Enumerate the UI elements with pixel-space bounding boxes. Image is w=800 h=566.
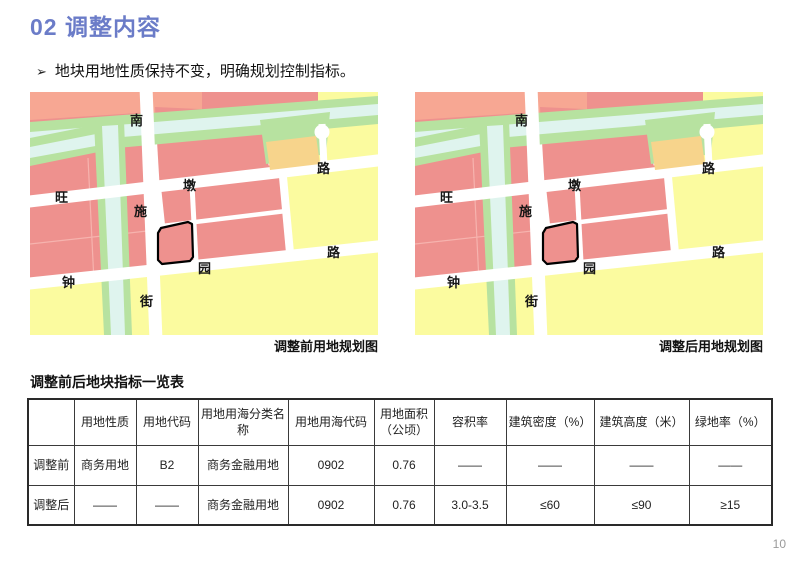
bullet-item: ➢地块用地性质保持不变，明确规划控制指标。: [36, 60, 355, 81]
column-header: 用地面积（公顷）: [374, 399, 434, 445]
column-header: 容积率: [434, 399, 506, 445]
map-before-adjustment: [30, 92, 378, 335]
map-caption-after: 调整后用地规划图: [415, 336, 763, 355]
table-cell: 3.0-3.5: [434, 485, 506, 525]
table-cell: ≤90: [594, 485, 689, 525]
column-header: 用地性质: [74, 399, 136, 445]
table-cell: ——: [594, 445, 689, 485]
bullet-arrow-icon: ➢: [36, 64, 47, 79]
column-header: [28, 399, 74, 445]
table-header-row: 用地性质 用地代码 用地用海分类名称 用地用海代码 用地面积（公顷） 容积率 建…: [28, 399, 772, 445]
table-cell: ≥15: [689, 485, 772, 525]
row-label: 调整后: [28, 485, 74, 525]
table-cell: ——: [689, 445, 772, 485]
table-row: 调整后 —— —— 商务金融用地 0902 0.76 3.0-3.5 ≤60 ≤…: [28, 485, 772, 525]
map-caption-before: 调整前用地规划图: [30, 336, 378, 355]
table-cell: 0.76: [374, 485, 434, 525]
column-header: 建筑密度（%）: [506, 399, 594, 445]
column-header: 用地代码: [136, 399, 198, 445]
table-cell: 商务金融用地: [198, 485, 288, 525]
table-cell: 0.76: [374, 445, 434, 485]
map-after-adjustment: [415, 92, 763, 335]
table-cell: ——: [74, 485, 136, 525]
column-header: 用地用海代码: [288, 399, 374, 445]
table-cell: 商务金融用地: [198, 445, 288, 485]
table-row: 调整前 商务用地 B2 商务金融用地 0902 0.76 —— —— —— ——: [28, 445, 772, 485]
column-header: 建筑高度（米）: [594, 399, 689, 445]
table-cell: ≤60: [506, 485, 594, 525]
column-header: 绿地率（%）: [689, 399, 772, 445]
row-label: 调整前: [28, 445, 74, 485]
page-title: 02 调整内容: [30, 8, 161, 42]
table-cell: ——: [136, 485, 198, 525]
bullet-text: 地块用地性质保持不变，明确规划控制指标。: [55, 63, 355, 80]
table-title: 调整前后地块指标一览表: [30, 372, 184, 392]
slide: 02 调整内容 ➢地块用地性质保持不变，明确规划控制指标。: [0, 0, 800, 566]
indicators-table: 用地性质 用地代码 用地用海分类名称 用地用海代码 用地面积（公顷） 容积率 建…: [27, 398, 773, 526]
page-number: 10: [773, 537, 786, 551]
table-cell: 商务用地: [74, 445, 136, 485]
table-cell: ——: [434, 445, 506, 485]
table-cell: B2: [136, 445, 198, 485]
column-header: 用地用海分类名称: [198, 399, 288, 445]
table-cell: ——: [506, 445, 594, 485]
table-cell: 0902: [288, 485, 374, 525]
table-cell: 0902: [288, 445, 374, 485]
